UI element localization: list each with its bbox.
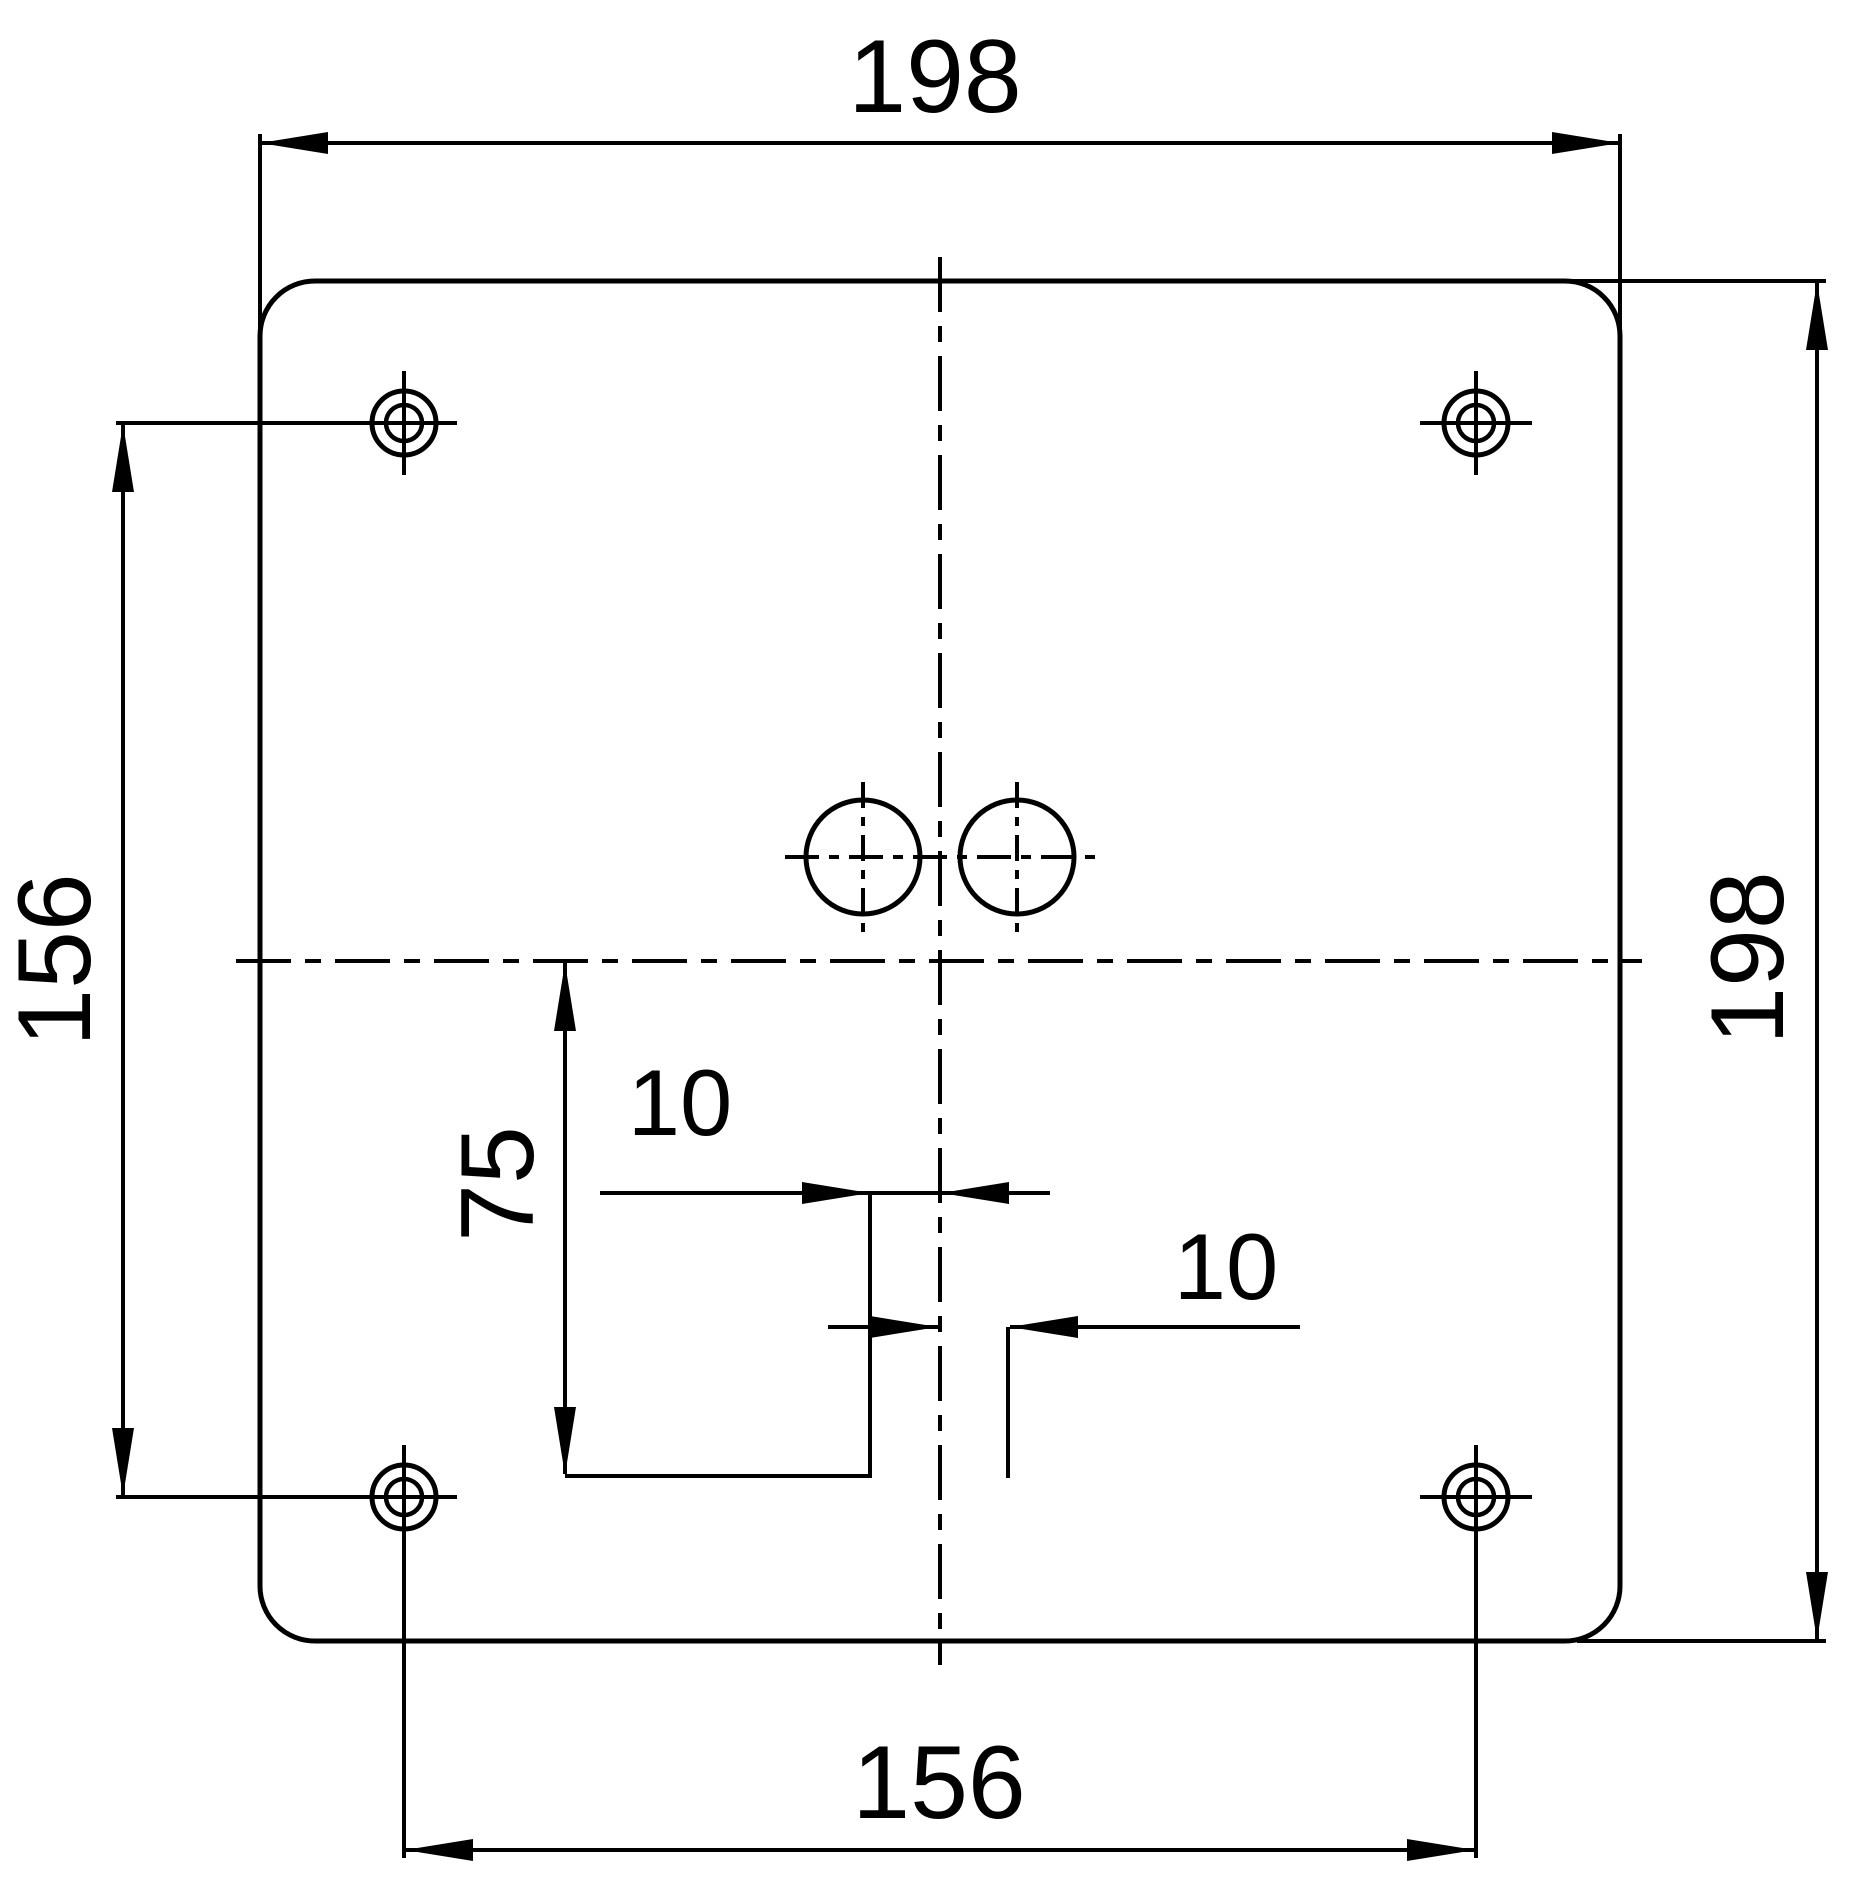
dim-left-hole-pitch: 156 (0, 423, 134, 1497)
dim-offset-10-right-label: 10 (1174, 1214, 1279, 1319)
arrowhead-left-icon (405, 1839, 473, 1861)
dim-offset-10-left-label: 10 (628, 1050, 733, 1155)
technical-drawing-svg: 198 198 156 156 75 1 (0, 0, 1863, 1900)
dim-bottom-hole-pitch: 156 (404, 1725, 1476, 1861)
arrowhead-down-icon (1806, 1572, 1828, 1640)
arrowhead-up-icon (112, 424, 134, 492)
arrowhead-down-icon (112, 1428, 134, 1496)
dim-right-height-label: 198 (1690, 871, 1806, 1045)
dim-top-width-label: 198 (848, 19, 1022, 135)
dim-bottom-hole-pitch-label: 156 (852, 1725, 1026, 1841)
arrowhead-up-icon (1806, 282, 1828, 350)
arrowhead-right-icon (1407, 1839, 1475, 1861)
arrowhead-right-icon (1552, 132, 1620, 154)
arrowhead-left-icon (260, 132, 328, 154)
dim-left-hole-pitch-label: 156 (0, 873, 113, 1047)
dim-vertical-75-label: 75 (440, 1126, 556, 1242)
drawing-canvas: 198 198 156 156 75 1 (0, 0, 1863, 1900)
